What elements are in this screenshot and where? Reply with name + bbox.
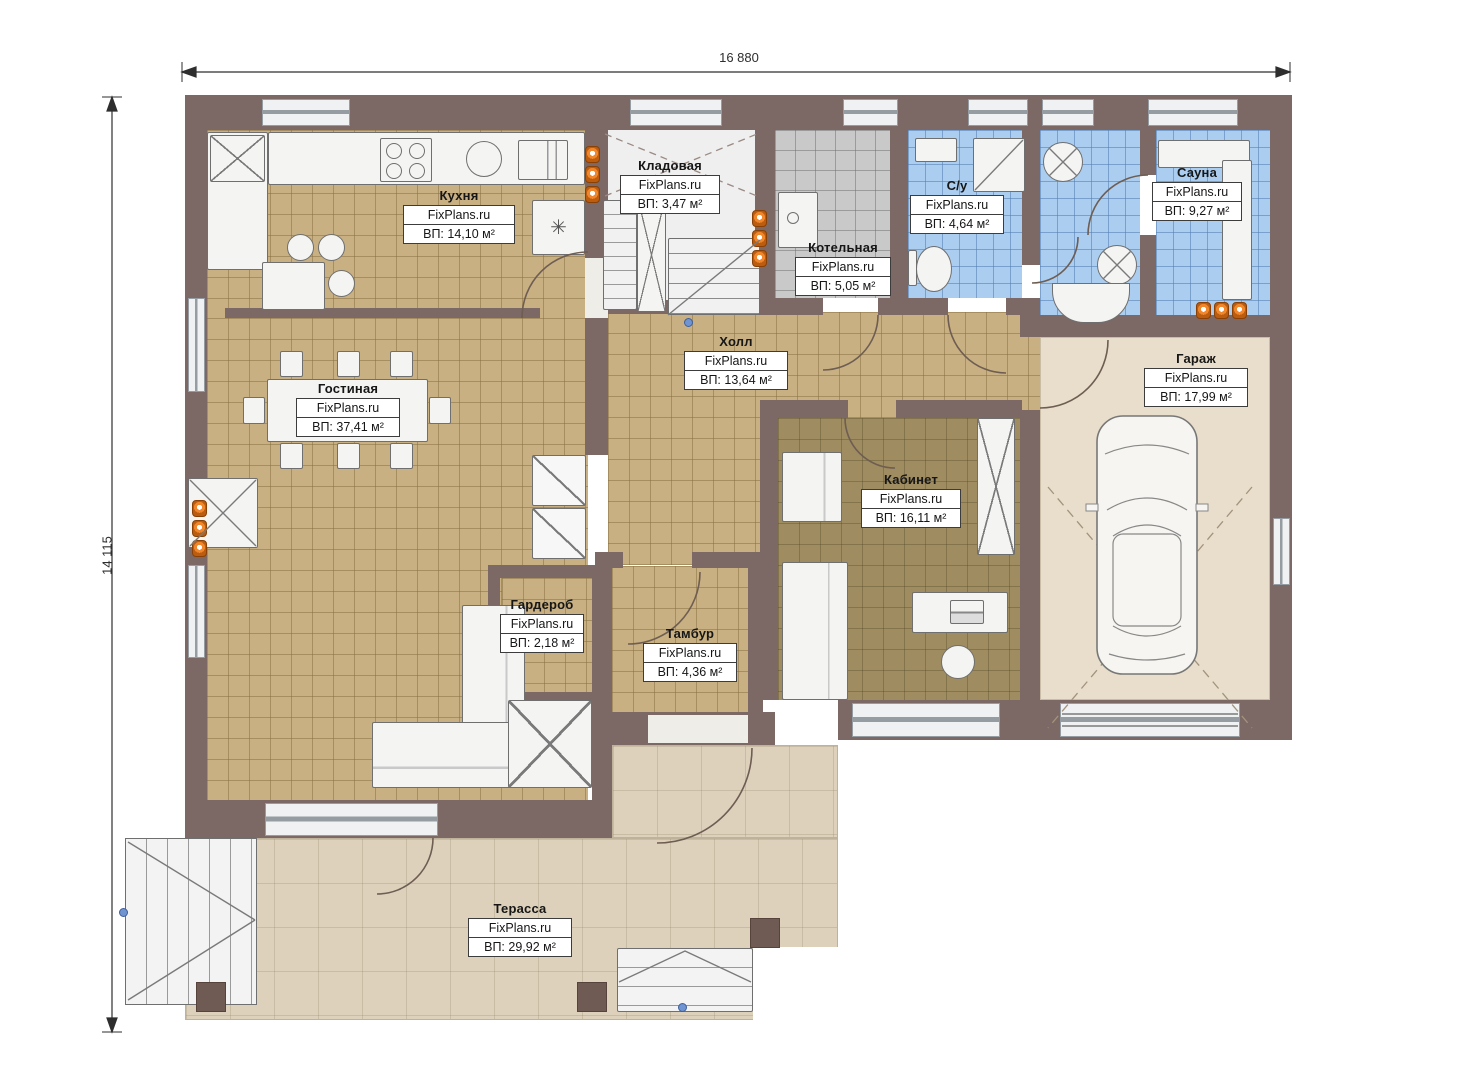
terrace-floor-upper (612, 745, 838, 838)
room-label-wardrobe: Гардероб FixPlans.ruВП: 2,18 м² (500, 597, 584, 653)
toilet-icon (916, 246, 952, 292)
room-label-kitchen: Кухня FixPlans.ruВП: 14,10 м² (403, 188, 515, 244)
terrace-ramp (125, 838, 257, 1005)
burner-icon (386, 143, 402, 159)
chair-icon (280, 351, 303, 377)
watermark: FixPlans.ru (1145, 369, 1247, 388)
window (188, 565, 205, 658)
terrace-post (750, 918, 780, 948)
window (1148, 99, 1238, 126)
bar-stool-icon (328, 270, 355, 297)
room-label-living: Гостиная FixPlans.ruВП: 37,41 м² (296, 381, 400, 437)
double-door-leaf (532, 508, 586, 559)
room-area: ВП: 29,92 м² (469, 938, 571, 956)
window (968, 99, 1028, 126)
chair-icon (390, 351, 413, 377)
office-sofa (782, 562, 848, 700)
room-area: ВП: 4,36 м² (644, 663, 736, 681)
office-armchair (782, 452, 842, 522)
window (630, 99, 722, 126)
room-label-vestibule: Тамбур FixPlans.ruВП: 4,36 м² (643, 626, 737, 682)
room-name: Кладовая (620, 158, 720, 173)
top-dimension-label: 16 880 (690, 50, 788, 65)
room-name: Кухня (403, 188, 515, 203)
axis-marker-icon (678, 1003, 687, 1012)
wall-vestibule-north-b (692, 552, 763, 568)
room-name: Гараж (1144, 351, 1248, 366)
room-area: ВП: 17,99 м² (1145, 388, 1247, 406)
watermark: FixPlans.ru (297, 399, 399, 418)
wall-office-north-b (896, 400, 1022, 418)
window (1042, 99, 1094, 126)
garage-door (1060, 703, 1240, 737)
wall-wardrobe-north (490, 565, 594, 578)
watermark: FixPlans.ru (404, 206, 514, 225)
office-wardrobe-icon (977, 418, 1015, 555)
double-door-leaf (532, 455, 586, 506)
radiator-icon (192, 500, 207, 557)
stove-icon (380, 138, 432, 182)
bar-stool-icon (318, 234, 345, 261)
window (265, 803, 438, 836)
room-area: ВП: 4,64 м² (911, 215, 1003, 233)
room-name: Холл (684, 334, 788, 349)
window (843, 99, 898, 126)
room-area: ВП: 5,05 м² (796, 277, 890, 295)
watermark: FixPlans.ru (1153, 183, 1241, 202)
room-area: ВП: 2,18 м² (501, 634, 583, 652)
window (1273, 518, 1290, 585)
watermark: FixPlans.ru (862, 490, 960, 509)
wall-kitchen-east-b (585, 318, 608, 455)
room-label-boiler: Котельная FixPlans.ruВП: 5,05 м² (795, 240, 891, 296)
window (852, 703, 1000, 737)
chair-icon (390, 443, 413, 469)
room-label-hall: Холл FixPlans.ruВП: 13,64 м² (684, 334, 788, 390)
room-name: Котельная (795, 240, 891, 255)
terrace-corner-cut (753, 947, 839, 1022)
burner-icon (386, 163, 402, 179)
room-name: Кабинет (861, 472, 961, 487)
room-label-office: Кабинет FixPlans.ruВП: 16,11 м² (861, 472, 961, 528)
laptop-icon (950, 600, 984, 624)
room-area: ВП: 37,41 м² (297, 418, 399, 436)
burner-icon (409, 143, 425, 159)
wardrobe-cabinet-icon (508, 700, 592, 788)
kitchen-sink-icon (466, 141, 502, 177)
wall-left (185, 95, 207, 840)
bar-stool-icon (287, 234, 314, 261)
bar-counter (262, 262, 325, 310)
wall-garage-west (1020, 410, 1040, 700)
room-area: ВП: 3,47 м² (621, 195, 719, 213)
watermark: FixPlans.ru (621, 176, 719, 195)
room-label-terrace: Терасса FixPlans.ruВП: 29,92 м² (468, 901, 572, 957)
window (188, 298, 205, 392)
wall-boiler-east (890, 130, 908, 310)
wall-vestibule-east (748, 560, 763, 712)
terrace-post (577, 982, 607, 1012)
wall-boiler-south-b (878, 298, 948, 315)
wall-vestibule-north-a (595, 552, 623, 568)
washbasin-icon (915, 138, 957, 162)
room-area: ВП: 13,64 м² (685, 371, 787, 389)
wall-boiler-south-a (775, 298, 823, 315)
watermark: FixPlans.ru (796, 258, 890, 277)
watermark: FixPlans.ru (911, 196, 1003, 215)
sofa-horizontal (372, 722, 525, 788)
storage-cabinet-icon (637, 198, 666, 312)
watermark: FixPlans.ru (685, 352, 787, 371)
washing-machine-icon (1097, 245, 1137, 285)
room-label-sauna: Сауна FixPlans.ruВП: 9,27 м² (1152, 165, 1242, 221)
wall-vestibule-left (592, 565, 612, 838)
room-label-garage: Гараж FixPlans.ruВП: 17,99 м² (1144, 351, 1248, 407)
wall-top (185, 95, 1292, 130)
storage-shelf (603, 200, 637, 310)
axis-marker-icon (119, 908, 128, 917)
room-name: С/у (910, 178, 1004, 193)
floor-plan: ✳ (0, 0, 1474, 1080)
burner-icon (409, 163, 425, 179)
room-area: ВП: 14,10 м² (404, 225, 514, 243)
chair-icon (337, 443, 360, 469)
boiler-dial-icon (787, 212, 799, 224)
watermark: FixPlans.ru (469, 919, 571, 938)
chair-icon (337, 351, 360, 377)
washing-machine-icon (1043, 142, 1083, 182)
radiator-icon (585, 146, 600, 203)
chair-icon (243, 397, 265, 424)
kitchen-cabinet-icon (210, 135, 265, 182)
room-name: Терасса (468, 901, 572, 916)
terrace-post (196, 982, 226, 1012)
room-name: Тамбур (643, 626, 737, 641)
room-name: Сауна (1152, 165, 1242, 180)
terrace-steps (617, 948, 753, 1012)
room-label-wc: С/у FixPlans.ruВП: 4,64 м² (910, 178, 1004, 234)
staircase (668, 238, 760, 315)
watermark: FixPlans.ru (501, 615, 583, 634)
room-name: Гостиная (296, 381, 400, 396)
chair-icon (429, 397, 451, 424)
radiator-icon (752, 210, 767, 267)
freezer-icon: ✳ (532, 200, 585, 255)
room-area: ВП: 9,27 м² (1153, 202, 1241, 220)
door-opening (648, 715, 748, 743)
room-area: ВП: 16,11 м² (862, 509, 960, 527)
wall-right (1270, 95, 1292, 740)
room-label-storage: Кладовая FixPlans.ruВП: 3,47 м² (620, 158, 720, 214)
left-dimension-label: 14 115 (100, 517, 115, 595)
window (262, 99, 350, 126)
watermark: FixPlans.ru (644, 644, 736, 663)
radiator-icon (1196, 302, 1247, 319)
wall-washroom-east-b (1140, 235, 1156, 315)
chair-icon (280, 443, 303, 469)
fridge-icon (518, 140, 568, 180)
room-name: Гардероб (500, 597, 584, 612)
wall-wc-south (1006, 298, 1040, 315)
office-chair-icon (941, 645, 975, 679)
axis-marker-icon (684, 318, 693, 327)
